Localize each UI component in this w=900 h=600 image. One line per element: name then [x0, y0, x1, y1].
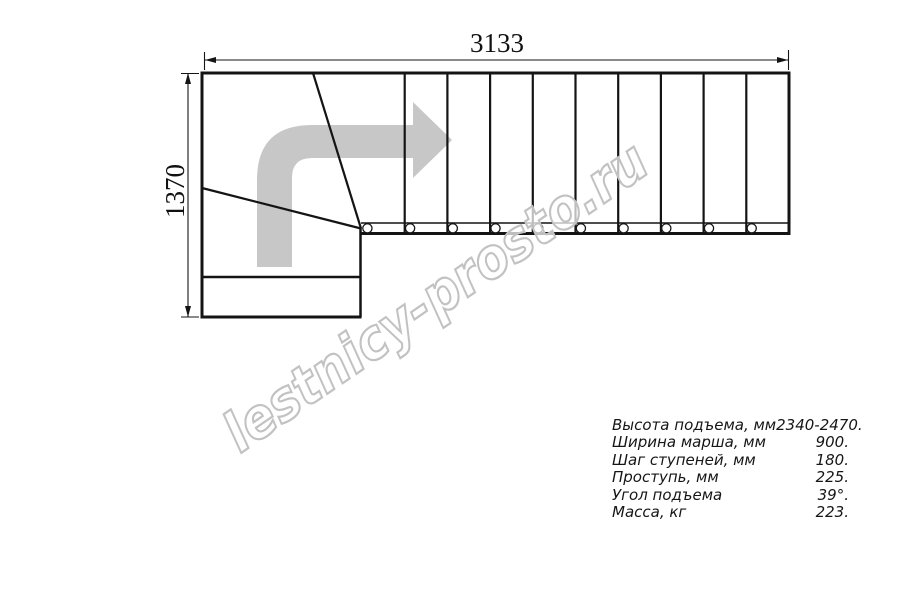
dimension-width: 3133 [205, 28, 789, 70]
spec-row-width: Ширина марша, мм 900. [612, 434, 849, 451]
baluster-circle [747, 224, 756, 233]
spec-value: 225. [816, 469, 849, 486]
spec-row-angle: Угол подъема 39°. [612, 487, 849, 504]
spec-value: 223. [816, 504, 849, 521]
spec-row-step: Шаг ступеней, мм 180. [612, 452, 849, 469]
dim-width-text: 3133 [470, 28, 524, 58]
direction-arrow-shape [257, 102, 452, 267]
spec-label: Проступь, мм [612, 469, 719, 486]
spec-row-mass: Масса, кг 223. [612, 504, 849, 521]
stair-plan-drawing: 3133 1370 lestnicy-prosto.ru Высота подъ… [0, 0, 900, 600]
spec-value: 39°. [818, 487, 849, 504]
spec-label: Ширина марша, мм [612, 434, 766, 451]
spec-label: Шаг ступеней, мм [612, 452, 756, 469]
spec-row-height: Высота подъема, мм 2340-2470. [612, 417, 849, 434]
dim-height-text: 1370 [160, 164, 190, 218]
dim-arrowhead [205, 57, 216, 63]
spec-value: 2340-2470. [776, 417, 863, 434]
spec-label: Масса, кг [612, 504, 686, 521]
spec-value: 180. [816, 452, 849, 469]
spec-row-tread: Проступь, мм 225. [612, 469, 849, 486]
dim-arrowhead [185, 306, 191, 317]
dim-arrowhead [185, 73, 191, 84]
baluster-circle [406, 224, 415, 233]
baluster-circle [448, 224, 457, 233]
dim-arrowhead [777, 57, 788, 63]
baluster-circle [619, 224, 628, 233]
baluster-circle [363, 224, 372, 233]
direction-arrow [257, 102, 452, 267]
spec-table: Высота подъема, мм 2340-2470. Ширина мар… [612, 417, 849, 521]
spec-value: 900. [816, 434, 849, 451]
spec-label: Угол подъема [612, 487, 722, 504]
baluster-circle [662, 224, 671, 233]
baluster-circle [704, 224, 713, 233]
dimension-height: 1370 [160, 73, 199, 317]
spec-label: Высота подъема, мм [612, 417, 776, 434]
